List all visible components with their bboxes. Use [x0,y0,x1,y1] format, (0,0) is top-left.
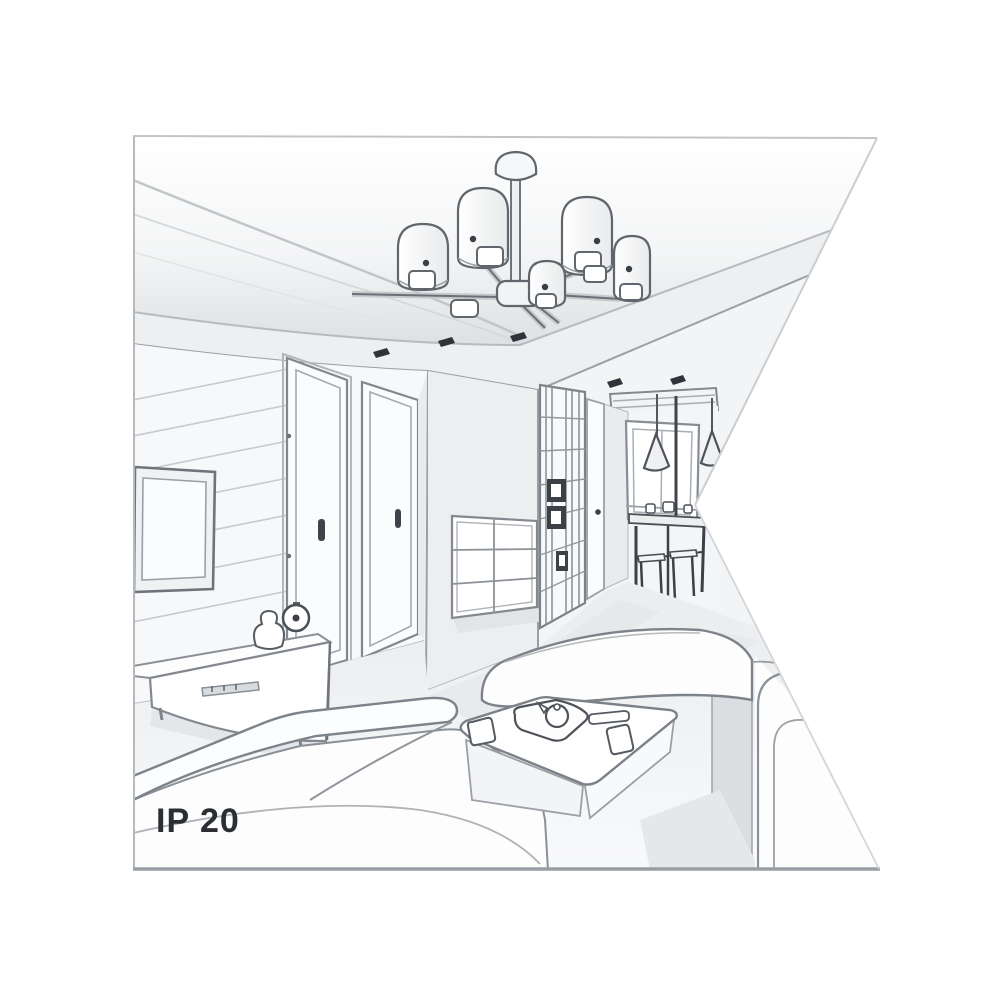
room-sketch [0,0,1000,1000]
chandelier-stem [511,178,520,284]
door-left [283,354,351,682]
cup [468,718,495,745]
tv-screen [142,478,206,580]
cup [607,725,633,754]
tv [134,467,215,592]
chandelier-canopy [496,152,537,180]
door-handle [395,509,401,528]
ip-rating-label: IP 20 [156,802,240,841]
right-sofa [752,656,880,870]
hall-door [587,399,604,599]
hall-door-handle [595,509,601,515]
wardrobe [540,385,585,628]
door-right [362,382,418,658]
product-illustration: IP 20 [0,0,1000,1000]
chest-of-drawers [452,516,546,633]
door-handle [318,519,325,541]
